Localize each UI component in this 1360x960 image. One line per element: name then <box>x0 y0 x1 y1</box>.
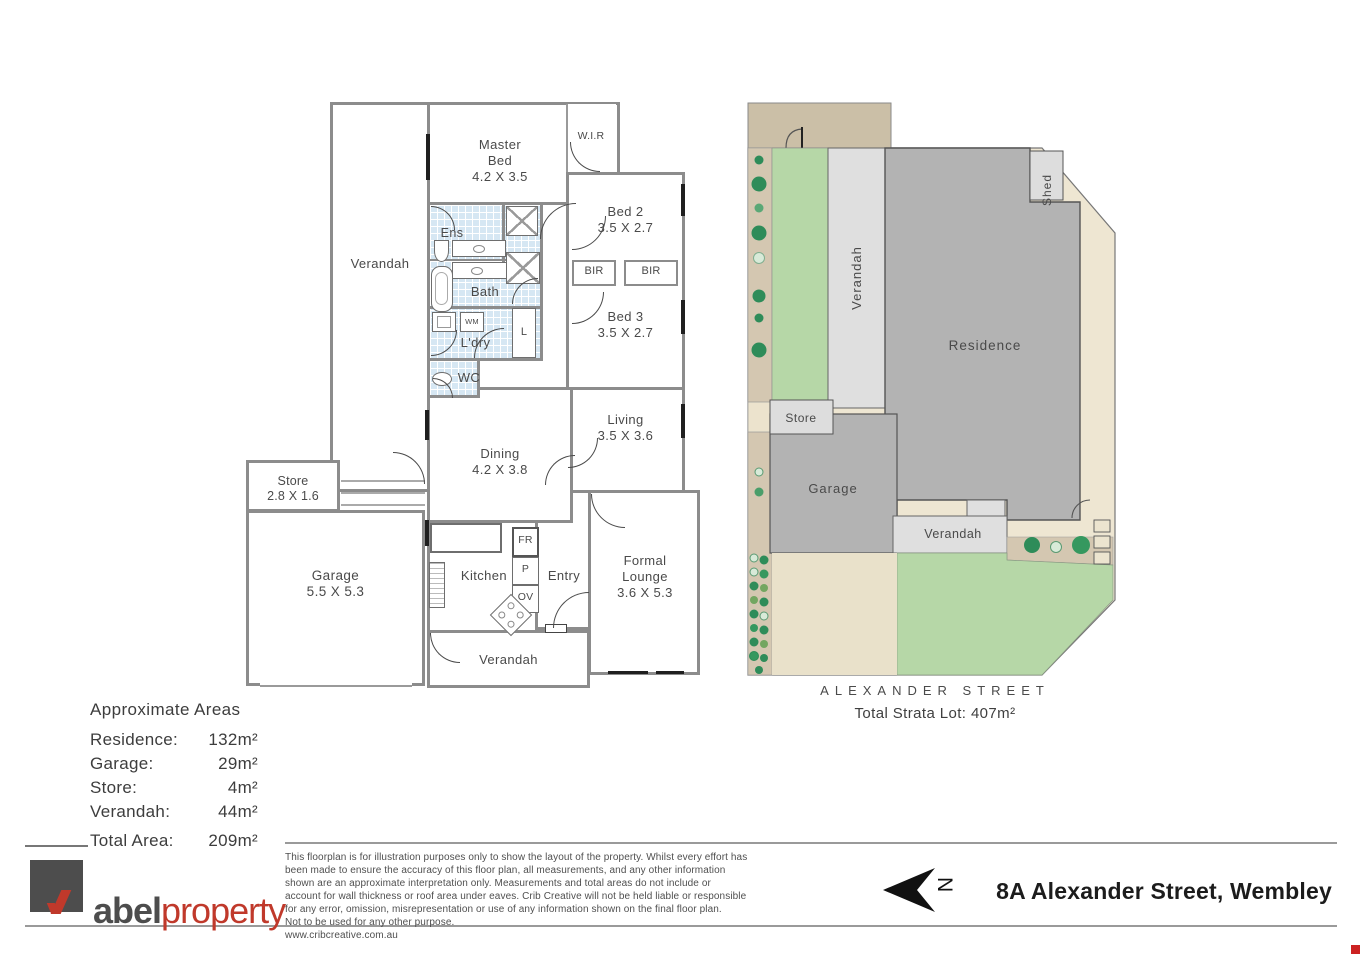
stove-burner <box>515 610 525 620</box>
disclaimer-line: account for wall thickness or roof area … <box>285 890 747 903</box>
label-linen: L <box>512 326 536 339</box>
label-bed2: Bed 2 3.5 X 2.7 <box>566 204 685 236</box>
label-wir: W.I.R <box>566 130 616 143</box>
step-box <box>1094 552 1110 564</box>
window-lounge-1 <box>608 671 648 674</box>
garage-door-line <box>260 685 412 687</box>
logo-abel: abel <box>93 890 161 931</box>
area-row-verandah: Verandah: 44m² <box>90 802 258 822</box>
window-dining <box>425 410 429 440</box>
area-row-store: Store: 4m² <box>90 778 258 798</box>
site-label-verandah-front: Verandah <box>924 527 982 541</box>
label-formal-lounge: Formal Lounge 3.6 X 5.3 <box>592 553 698 601</box>
label-ldry: L'dry <box>443 335 508 351</box>
area-label: Store: <box>90 778 137 797</box>
window-kitchen <box>425 520 429 546</box>
north-arrow: N <box>880 865 960 917</box>
kitchen-bench <box>430 523 502 553</box>
label-fr: FR <box>512 534 539 547</box>
label-bed3: Bed 3 3.5 X 2.7 <box>566 309 685 341</box>
total-area-value: 209m² <box>208 831 258 851</box>
ensuite-toilet <box>434 240 449 262</box>
disclaimer-line: for any error, omission, misrepresentati… <box>285 903 747 916</box>
street-label: ALEXANDER STREET <box>780 683 1090 698</box>
corner-red-dot <box>1351 945 1360 954</box>
area-value: 132m² <box>208 730 258 750</box>
site-verandah-notch <box>967 500 1005 517</box>
floorplan-document: Verandah Master Bed 4.2 X 3.5 W.I.R Bed … <box>0 0 1360 960</box>
area-value: 44m² <box>218 802 258 822</box>
door-arc-entry <box>553 592 589 628</box>
rear-paving <box>748 103 891 148</box>
laundry-trough <box>432 312 456 332</box>
disclaimer-line: This floorplan is for illustration purpo… <box>285 851 747 864</box>
area-label: Garage: <box>90 754 154 773</box>
trough-inner <box>437 316 451 328</box>
site-label-store: Store <box>785 411 816 425</box>
label-p: P <box>512 563 539 576</box>
label-ov: OV <box>512 591 539 604</box>
label-wm: WM <box>460 317 484 326</box>
shower <box>506 206 538 236</box>
store-pad <box>748 402 770 432</box>
label-verandah-left: Verandah <box>330 256 430 272</box>
divider-left <box>25 845 88 847</box>
room-verandah-left <box>330 102 430 492</box>
site-plan: Verandah Residence Shed Store Garage Ver… <box>745 100 1120 685</box>
ramp-line <box>341 492 425 494</box>
total-strata-label: Total Strata Lot: 407m² <box>780 705 1090 722</box>
disclaimer-line: Not to be used for any other purpose. <box>285 916 747 929</box>
stove-burner <box>506 619 516 629</box>
disclaimer-line: shown are an approximate interpretation … <box>285 877 747 890</box>
area-row-residence: Residence: 132m² <box>90 730 258 750</box>
site-label-garage: Garage <box>808 481 857 496</box>
label-bir2: BIR <box>624 265 678 278</box>
label-bath: Bath <box>450 284 520 300</box>
site-label-residence: Residence <box>949 338 1022 353</box>
kitchen-sink <box>429 562 445 608</box>
area-row-garage: Garage: 29m² <box>90 754 258 774</box>
label-garage-fp: Garage 5.5 X 5.3 <box>246 568 425 601</box>
basin <box>471 267 483 275</box>
step-box <box>1094 520 1110 532</box>
label-entry: Entry <box>536 568 592 584</box>
label-store-fp: Store 2.8 X 1.6 <box>246 474 340 505</box>
disclaimer-line: www.cribcreative.com.au <box>285 929 747 942</box>
area-label: Residence: <box>90 730 178 749</box>
label-dining: Dining 4.2 X 3.8 <box>427 446 573 478</box>
side-garden <box>772 148 828 400</box>
logo-wordmark: abelproperty <box>93 890 285 932</box>
driveway <box>772 553 897 675</box>
ensuite-vanity <box>452 240 506 257</box>
property-address: 8A Alexander Street, Wembley <box>996 878 1332 905</box>
area-row-total: Total Area: 209m² <box>90 831 258 851</box>
label-ens: Ens <box>434 226 470 241</box>
label-wc: WC <box>452 370 486 386</box>
disclaimer: This floorplan is for illustration purpo… <box>285 851 747 942</box>
label-kitchen: Kitchen <box>450 568 518 584</box>
bath-vanity <box>452 262 508 279</box>
logo-property: property <box>161 890 285 931</box>
stove-burner <box>497 610 507 620</box>
ramp-line <box>341 504 425 506</box>
area-value: 29m² <box>218 754 258 774</box>
north-arrow-shape <box>883 868 935 912</box>
north-letter: N <box>933 877 956 892</box>
site-label-verandah-side: Verandah <box>849 246 864 310</box>
label-living: Living 3.5 X 3.6 <box>566 412 685 444</box>
label-verandah-bottom: Verandah <box>427 652 590 668</box>
areas-title: Approximate Areas <box>90 700 240 720</box>
total-area-label: Total Area: <box>90 831 174 850</box>
bathtub-inner <box>435 272 448 305</box>
site-label-shed: Shed <box>1040 174 1054 206</box>
label-bir1: BIR <box>572 265 616 278</box>
basin <box>473 245 485 253</box>
disclaimer-line: been made to ensure the accuracy of this… <box>285 864 747 877</box>
label-master-bed: Master Bed 4.2 X 3.5 <box>430 137 570 185</box>
step-box <box>1094 536 1110 548</box>
area-value: 4m² <box>228 778 258 798</box>
window-lounge-2 <box>656 671 684 674</box>
divider-top <box>285 842 1337 844</box>
front-lawn <box>897 553 1113 675</box>
area-label: Verandah: <box>90 802 170 821</box>
